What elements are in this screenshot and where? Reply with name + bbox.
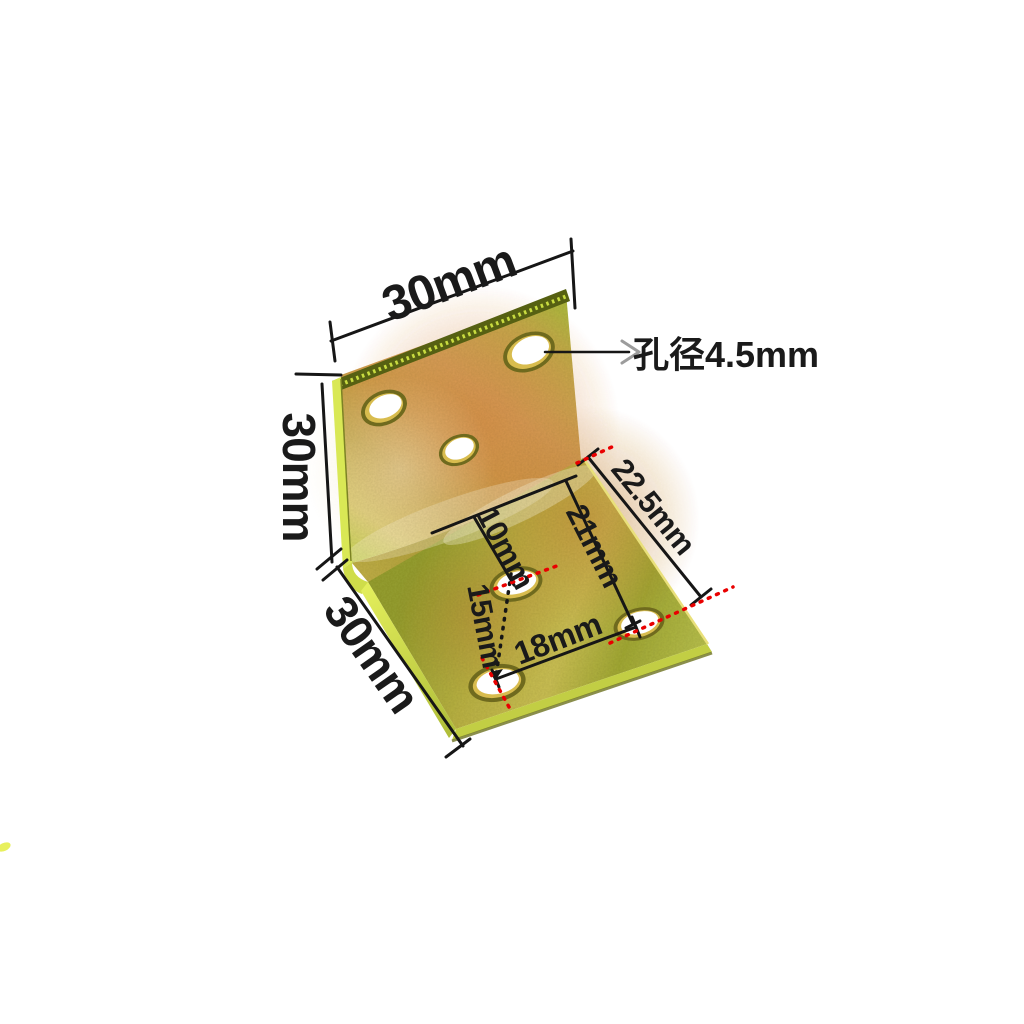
dim-left-height-ext-top [296,374,341,375]
dim-label-left-height: 30mm [272,413,326,542]
bracket-illustration [0,0,1024,1024]
product-diagram-canvas: 30mm 孔径4.5mm 30mm 30mm 22.5mm 21mm 10mm … [0,0,1024,1024]
dim-label-hole-diameter: 孔径4.5mm [633,326,819,378]
stray-speck [0,840,12,853]
dim-top-width-ext-right [571,239,575,308]
dim-bottom-depth-end-tick [446,739,470,757]
